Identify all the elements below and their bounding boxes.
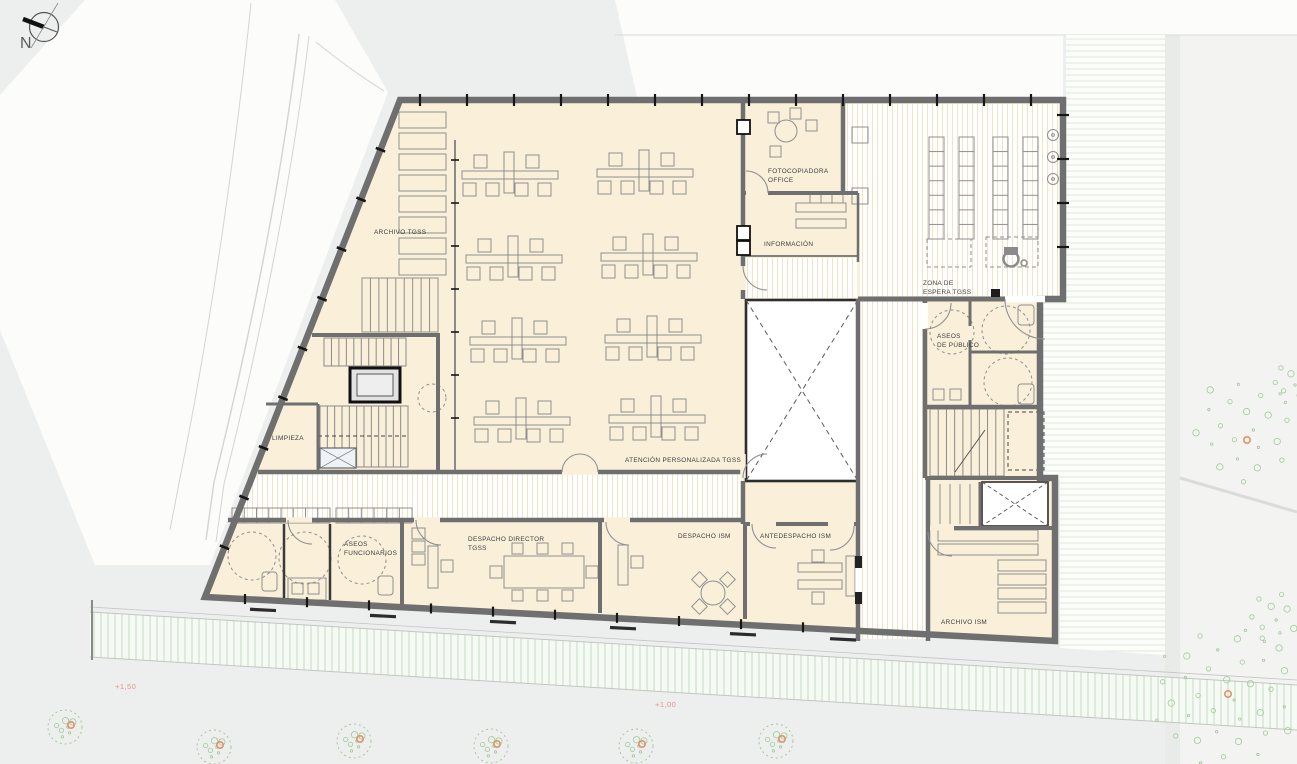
label-fotocopiadora: FOTOCOPIADORA [768,168,829,175]
label-limpieza: LIMPIEZA [272,435,304,442]
compass-north-label: N [20,35,32,52]
label-archivo-tgss: ARCHIVO TGSS [374,229,426,236]
east-garden-area [1180,0,1297,764]
level-plaza: +1,00 [655,700,676,709]
label-zona-espera: ZONA DE [923,280,954,287]
corridor-floor [860,299,926,639]
label-aseos-publico: ASEOS [937,333,961,340]
label-despacho-director: DESPACHO DIRECTOR [468,536,544,543]
label-atencion: ATENCIÓN PERSONALIZADA TGSS [625,455,741,464]
label-antedespacho-ism: ANTEDESPACHO ISM [760,533,831,540]
cleaning-sink [320,448,356,468]
label-archivo-ism: ARCHIVO ISM [941,619,987,626]
label-zona-espera-2: ESPERA TGSS [923,289,971,296]
label-fotocopiadora-2: OFFICE [768,177,794,184]
label-despacho-director-2: TGSS [468,545,487,552]
label-despacho-ism: DESPACHO ISM [678,533,731,540]
label-aseos-publico-2: DE PÚBLICO [937,340,979,349]
label-aseos-funcionarios-2: FUNCIONARIOS [344,550,397,557]
floor-plan-svg: ARCHIVO TGSS FOTOCOPIADORA OFFICE INFORM… [0,0,1297,764]
south-corridor-floor [231,474,741,518]
floor-plan-page: ARCHIVO TGSS FOTOCOPIADORA OFFICE INFORM… [0,0,1297,764]
label-aseos-funcionarios: ASEOS [344,541,368,548]
elevator-right [982,482,1048,526]
east-path [1165,0,1180,764]
level-terrace: +1,50 [115,682,136,691]
label-informacion: INFORMACIÓN [764,239,813,248]
